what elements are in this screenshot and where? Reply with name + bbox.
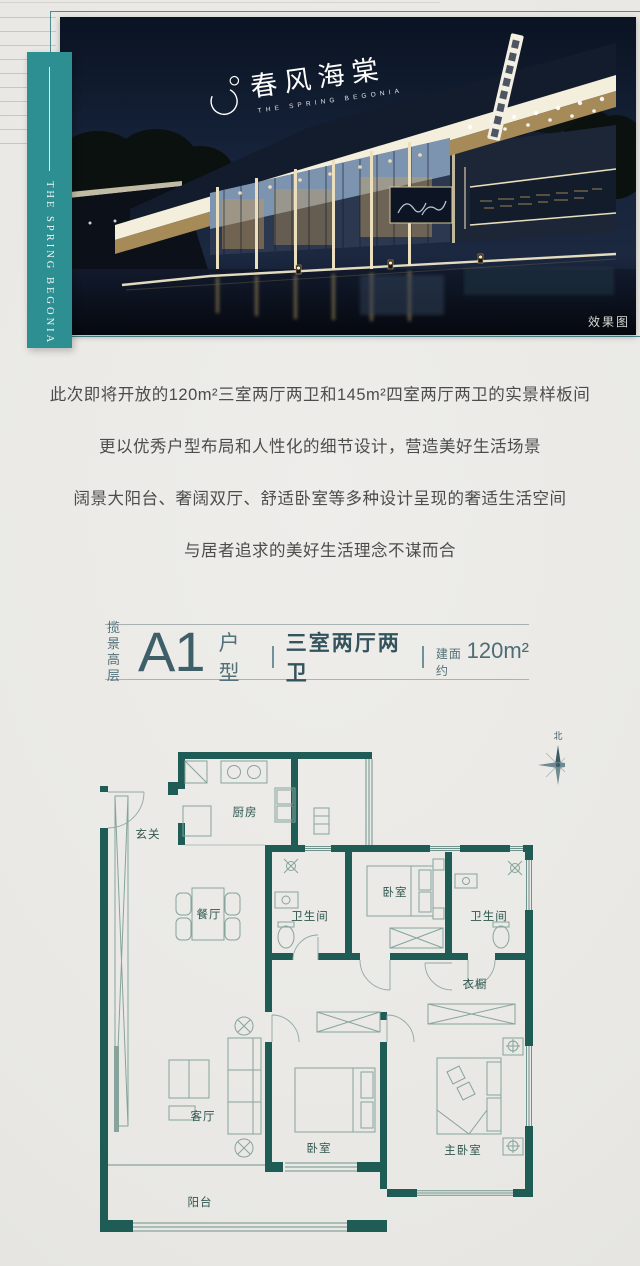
- room-label-bath2: 卫生间: [470, 909, 508, 923]
- intro-line-3: 阔景大阳台、奢阔双厅、舒适卧室等多种设计呈现的奢适生活空间: [0, 473, 640, 525]
- area-prefix: 建面约: [436, 645, 465, 679]
- kitchen-fixtures: [183, 761, 329, 845]
- room-label-entry: 玄关: [136, 827, 161, 841]
- intro-section: 此次即将开放的120m²三室两厅两卫和145m²四室两厅两卫的实景样板间 更以优…: [0, 369, 640, 577]
- room-label-living: 客厅: [191, 1109, 216, 1123]
- photo-watermark: 效果图: [588, 314, 630, 329]
- plan-tag: 揽景 高层: [107, 620, 134, 684]
- intro-line-1: 此次即将开放的120m²三室两厅两卫和145m²四室两厅两卫的实景样板间: [0, 369, 640, 421]
- divider-bar: [272, 646, 274, 668]
- plan-windows: [108, 759, 533, 1231]
- plan-layout: 三室两厅两卫: [286, 627, 410, 687]
- hero-rendering-photo: 春风海棠 THE SPRING BEGONIA 效果图: [60, 17, 636, 335]
- room-label-master: 主卧室: [444, 1143, 482, 1157]
- ribbon-divider-line: [49, 67, 50, 171]
- intro-line-2: 更以优秀户型布局和人性化的细节设计，营造美好生活场景: [0, 421, 640, 473]
- bath1-fixtures: [275, 859, 298, 948]
- living-room-furniture: [114, 1017, 261, 1157]
- plan-header: 揽景 高层 A1 户型 三室两厅两卫 建面约 120m²: [105, 624, 529, 680]
- compass-north-label: 北: [553, 731, 562, 741]
- divider-bar: [422, 646, 424, 668]
- intro-line-4: 与居者追求的美好生活理念不谋而合: [0, 525, 640, 577]
- room-label-balcony: 阳台: [188, 1195, 213, 1209]
- room-label-bedroom-top: 卧室: [383, 885, 408, 899]
- floor-plan: 北 玄关 厨房 餐厅 卫生间 卧室 卫生间 衣橱 客厅 卧室 主卧室 阳台: [95, 728, 565, 1258]
- plan-area: 建面约 120m²: [436, 638, 529, 679]
- room-label-bath1: 卫生间: [291, 909, 329, 923]
- bath2-fixtures: [455, 861, 522, 948]
- plan-tag-top: 揽景: [107, 620, 134, 652]
- hero-art: 春风海棠 THE SPRING BEGONIA 效果图: [60, 17, 636, 335]
- room-label-bedroom2: 卧室: [307, 1141, 332, 1155]
- plan-code: A1: [138, 629, 205, 675]
- brand-ribbon: THE SPRING BEGONIA: [27, 52, 72, 348]
- room-label-closet: 衣橱: [463, 977, 488, 991]
- closet-furniture: [428, 1004, 515, 1024]
- plan-type-label: 户型: [219, 627, 260, 687]
- page: 春风海棠 THE SPRING BEGONIA 效果图 THE SPRING B…: [0, 0, 640, 1266]
- bedroom2-furniture: [295, 1012, 380, 1132]
- decor-top-rule: [0, 2, 440, 3]
- area-value: 120m²: [467, 638, 529, 664]
- master-bedroom-furniture: [437, 1038, 523, 1155]
- room-label-kitchen: 厨房: [233, 806, 258, 819]
- room-label-dining: 餐厅: [197, 907, 222, 921]
- compass-icon: 北: [538, 731, 565, 785]
- brand-ribbon-label: THE SPRING BEGONIA: [44, 181, 55, 345]
- art-screen-panel: [390, 187, 452, 223]
- bedroom-top-furniture: [367, 859, 444, 948]
- plan-tag-bottom: 高层: [107, 652, 134, 684]
